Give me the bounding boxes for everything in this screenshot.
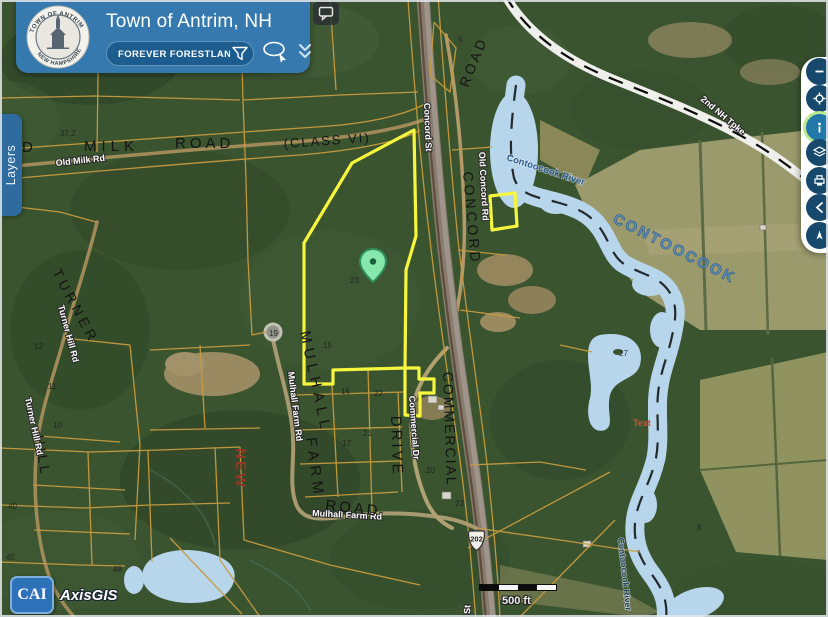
compass-icon xyxy=(813,229,826,242)
basemap-button[interactable] xyxy=(806,139,828,166)
back-button[interactable] xyxy=(806,194,828,221)
svg-text:8: 8 xyxy=(697,523,702,532)
svg-text:21: 21 xyxy=(363,429,372,438)
svg-text:48: 48 xyxy=(113,565,122,574)
svg-text:23: 23 xyxy=(350,276,359,285)
road-label: DRIVE xyxy=(387,416,406,477)
print-button[interactable] xyxy=(806,167,828,194)
zoom-out-button[interactable] xyxy=(806,58,828,85)
page-title: Town of Antrim, NH xyxy=(106,11,272,33)
svg-text:17: 17 xyxy=(342,439,351,448)
svg-text:37.2: 37.2 xyxy=(60,129,76,138)
svg-text:15: 15 xyxy=(323,341,332,350)
identify-button[interactable] xyxy=(806,114,828,141)
road-label: MILK xyxy=(84,138,139,155)
svg-text:19: 19 xyxy=(269,329,278,338)
town-seal: TOWN OF ANTRIM NEW HAMPSHIRE xyxy=(26,5,90,69)
search-input[interactable] xyxy=(116,42,232,67)
svg-text:40: 40 xyxy=(8,502,17,511)
svg-text:11: 11 xyxy=(48,382,57,391)
svg-text:45: 45 xyxy=(6,553,15,562)
svg-text:5: 5 xyxy=(458,35,463,44)
svg-text:20: 20 xyxy=(426,466,435,475)
collapse-header-button[interactable] xyxy=(296,43,314,63)
gis-map-viewer: OLD MILK ROAD (CLASS VI) Old Milk Rd Con… xyxy=(0,0,828,617)
arrow-left-icon xyxy=(813,201,826,214)
road-label: ROAD xyxy=(175,135,234,152)
layers-panel-tab[interactable]: Layers xyxy=(0,114,22,216)
cai-logo[interactable]: CAI xyxy=(10,576,54,614)
app-header: TOWN OF ANTRIM NEW HAMPSHIRE Town of Ant… xyxy=(16,0,310,73)
svg-text:22: 22 xyxy=(374,389,383,398)
scale-label: 500 ft xyxy=(502,595,531,607)
minus-icon xyxy=(813,65,826,78)
route-202-shield: 202 xyxy=(467,530,486,552)
product-name: AxisGIS xyxy=(60,587,118,604)
branding: CAI AxisGIS xyxy=(10,576,118,614)
print-icon xyxy=(813,174,826,187)
filter-funnel-icon[interactable] xyxy=(232,46,248,62)
lasso-select-icon xyxy=(261,40,291,64)
svg-text:16: 16 xyxy=(341,387,350,396)
svg-text:12: 12 xyxy=(34,342,43,351)
info-icon xyxy=(813,121,826,134)
svg-text:27: 27 xyxy=(619,349,628,358)
annotation-label: NEW xyxy=(232,448,249,489)
svg-text:23: 23 xyxy=(455,499,464,508)
annotation-label: Text xyxy=(633,418,651,428)
road-label: Concord St xyxy=(422,103,434,152)
locate-button[interactable] xyxy=(806,85,828,112)
comment-button[interactable] xyxy=(313,2,339,25)
crosshair-icon xyxy=(813,92,826,105)
satellite-map[interactable]: OLD MILK ROAD (CLASS VI) Old Milk Rd Con… xyxy=(0,0,828,617)
layers-tab-label: Layers xyxy=(4,145,18,186)
search-box[interactable] xyxy=(106,41,254,66)
layers-icon xyxy=(813,146,826,159)
compass-button[interactable] xyxy=(806,222,828,249)
comment-icon xyxy=(318,6,334,21)
double-chevron-down-icon xyxy=(298,43,312,60)
scale-bar xyxy=(480,585,556,590)
svg-text:10: 10 xyxy=(53,421,62,430)
road-label: St xyxy=(462,605,472,614)
svg-text:202: 202 xyxy=(470,535,483,544)
map-toolbar xyxy=(801,57,828,253)
lasso-select-button[interactable] xyxy=(259,40,293,67)
